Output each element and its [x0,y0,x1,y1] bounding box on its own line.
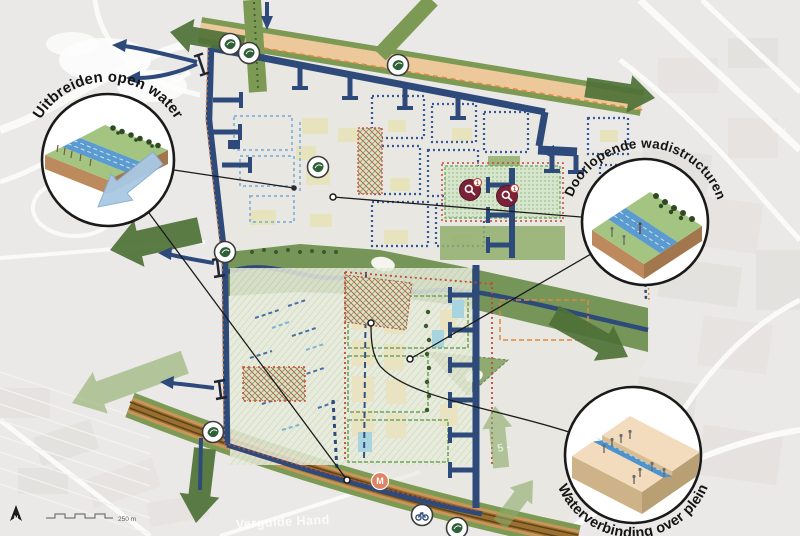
leader-endpoint-dot [291,185,297,191]
attention-marker: 1 [460,179,482,201]
water-icon-marker [308,157,329,178]
water-icon-marker [220,34,241,55]
leader-endpoint-dot [407,356,413,362]
transit-icon-marker [412,505,433,526]
attention-marker: 1 [497,185,519,207]
basemap-label-credit: ear [772,125,787,136]
north-label: N [14,516,18,522]
water-icon-marker [388,55,409,76]
svg-text:M: M [376,476,384,486]
water-icon-marker [239,43,260,64]
water-icon-marker [215,242,236,263]
water-structure-plan-map: Vergulde Hand 5 - ear M11 [0,0,800,536]
leader-endpoint-dot [330,194,336,200]
metro-station-marker: M [372,473,389,490]
plan-map-canvas: Vergulde Hand 5 - ear M11 [0,0,800,536]
leader-endpoint-dot [368,320,374,326]
leader-endpoint-dot [344,477,350,483]
water-icon-marker [447,518,468,536]
water-icon-marker [203,422,224,443]
scale-label: 250 m [118,516,136,523]
basemap-label-road-number: 5 - [496,441,511,455]
